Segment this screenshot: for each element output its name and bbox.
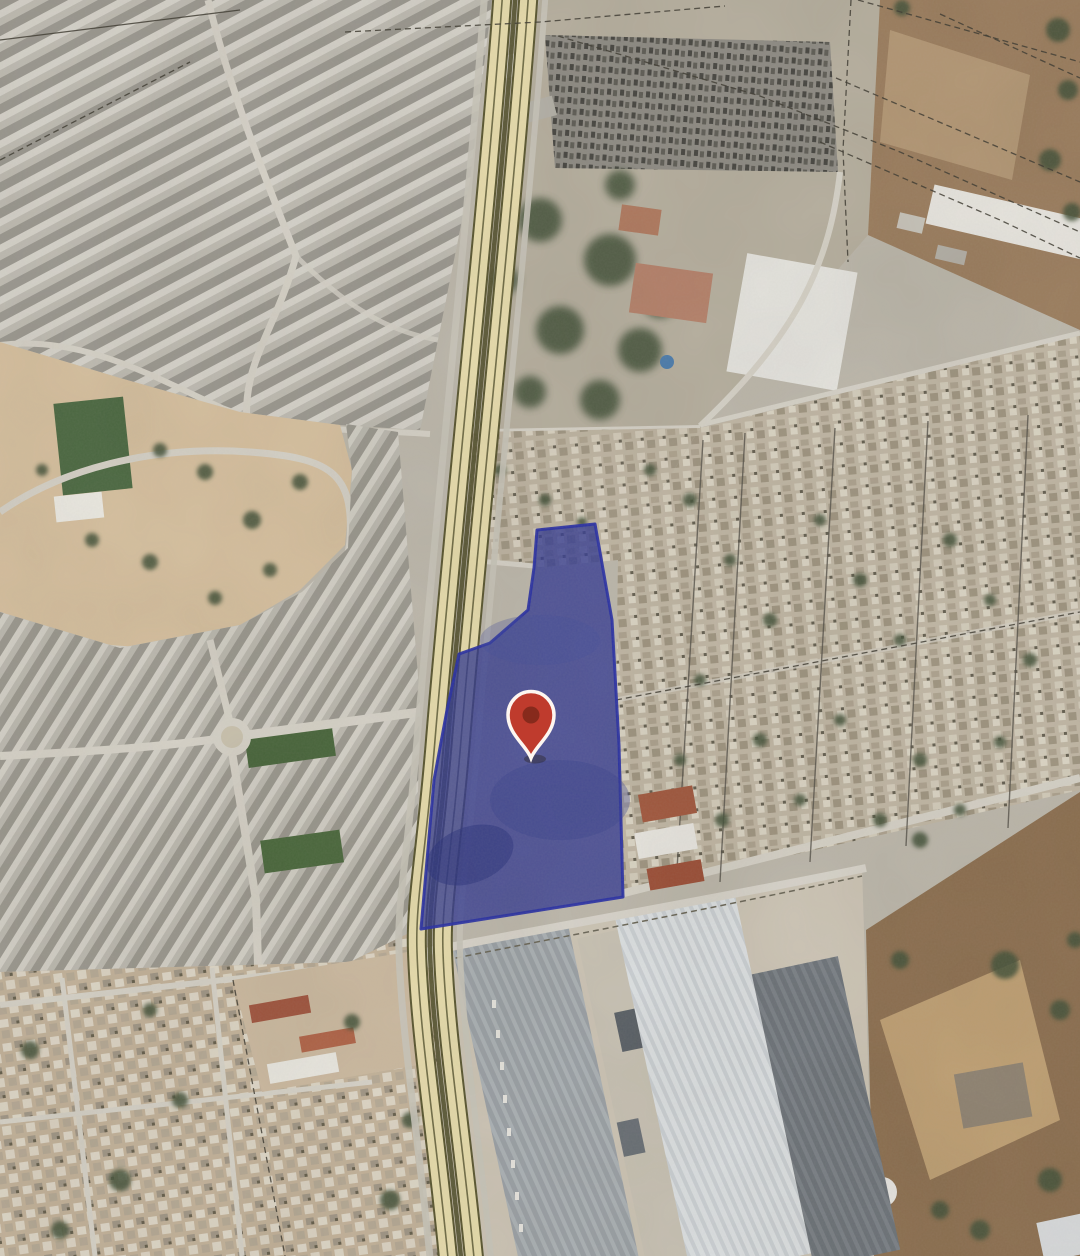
- map-canvas: [0, 0, 1080, 1256]
- pin-shadow: [524, 755, 546, 764]
- image-grain: [0, 0, 1080, 1256]
- pin-inner-dot: [523, 707, 540, 724]
- satellite-map[interactable]: [0, 0, 1080, 1256]
